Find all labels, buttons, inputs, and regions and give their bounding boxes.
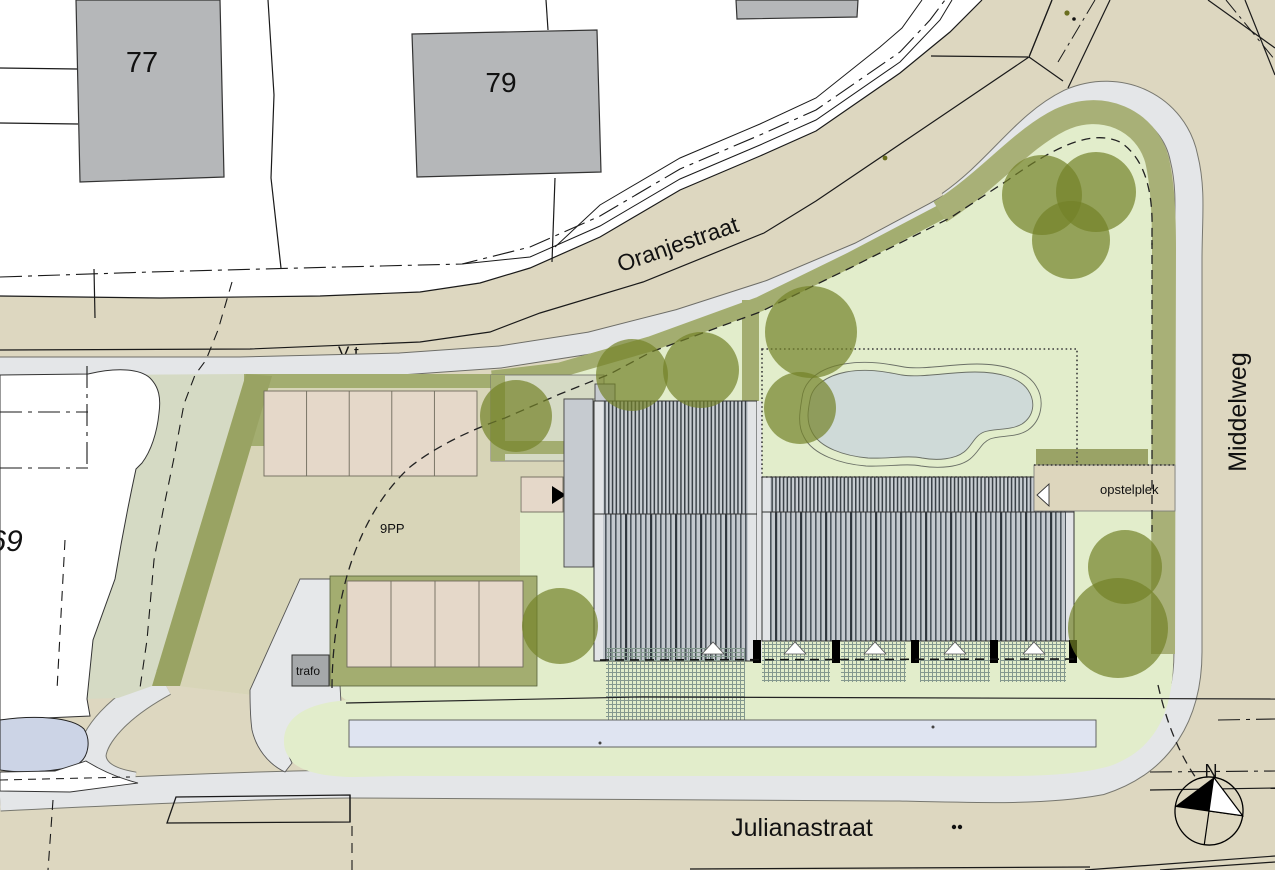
svg-text:69: 69 xyxy=(0,525,23,558)
svg-text:Julianastraat: Julianastraat xyxy=(731,814,873,842)
svg-text:trafo: trafo xyxy=(296,664,320,678)
svg-text:Middelweg: Middelweg xyxy=(1224,352,1252,472)
svg-text:79: 79 xyxy=(485,67,516,98)
svg-text:N: N xyxy=(1205,761,1218,781)
svg-text:opstelplek: opstelplek xyxy=(1100,482,1159,497)
svg-text:9PP: 9PP xyxy=(380,521,405,536)
svg-text:77: 77 xyxy=(126,47,158,79)
